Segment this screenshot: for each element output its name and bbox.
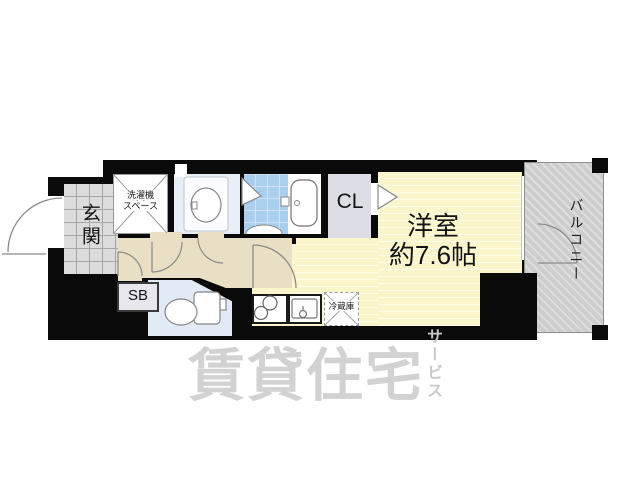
bathroom-door-opening [198, 232, 224, 239]
entrance-label: 玄関 [78, 203, 99, 249]
room-washroom [174, 174, 240, 234]
wall-notch [175, 164, 187, 177]
washroom-door-opening [150, 232, 182, 239]
balcony-post-top [592, 158, 608, 173]
washer-space-label: 洗濯機 スペース [115, 190, 166, 213]
closet-door-opening [371, 183, 378, 215]
kitchen-sink [288, 294, 322, 324]
kitchen-stove [252, 294, 288, 324]
balcony-post-bottom [592, 325, 608, 340]
watermark-text: 賃貸住宅 [188, 330, 424, 412]
watermark-sub-text: サービス [420, 328, 444, 400]
balcony-label: バルコニー [568, 198, 583, 283]
room-bathroom-tiles [244, 174, 288, 234]
main-room-door-opening [292, 244, 296, 288]
shoe-box-label: SB [117, 288, 159, 305]
wall-block-bottom-right [480, 273, 537, 340]
washer-space-label-line1: 洗濯機 [126, 190, 155, 200]
floorplan-canvas: 賃貸住宅 [0, 0, 640, 480]
entrance-door-opening [44, 196, 64, 248]
main-room-label-line1: 洋室 [368, 212, 498, 241]
refrigerator-label: 冷蔵庫 [324, 302, 359, 311]
toilet-door-opening [118, 276, 142, 281]
main-room-label: 洋室 約7.6帖 [368, 212, 498, 270]
closet-label: CL [330, 190, 370, 213]
main-room-label-line2: 約7.6帖 [368, 241, 498, 270]
washer-space-label-line2: スペース [122, 201, 159, 211]
room-bathtub-area [288, 174, 321, 234]
